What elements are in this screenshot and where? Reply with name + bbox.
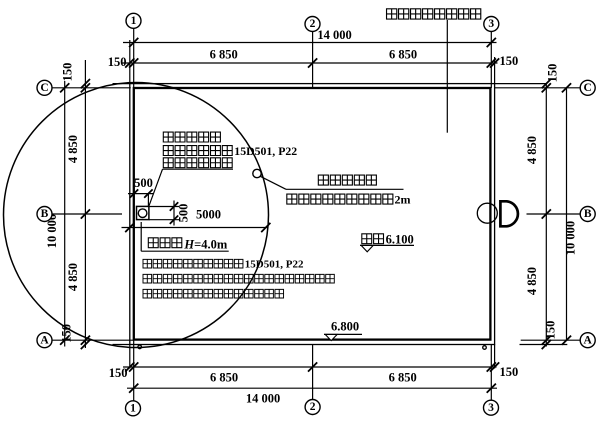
svg-text:15D501, P22: 15D501, P22: [234, 144, 297, 158]
svg-text:14 000: 14 000: [317, 28, 351, 42]
svg-text:6 850: 6 850: [389, 371, 417, 385]
svg-text:150: 150: [544, 321, 558, 340]
svg-text:2: 2: [310, 401, 316, 413]
svg-text:150: 150: [61, 63, 75, 82]
svg-text:1: 1: [131, 15, 137, 27]
svg-text:3: 3: [488, 18, 494, 30]
svg-text:14 000: 14 000: [246, 392, 280, 406]
svg-text:C: C: [40, 82, 48, 94]
svg-text:150: 150: [546, 64, 560, 83]
svg-text:H=4.0m: H=4.0m: [183, 237, 227, 251]
svg-text:B: B: [41, 208, 49, 220]
svg-text:15D501, P22: 15D501, P22: [245, 259, 304, 271]
svg-text:B: B: [584, 208, 592, 220]
svg-text:4 850: 4 850: [66, 263, 80, 291]
svg-text:150: 150: [500, 365, 519, 379]
svg-text:C: C: [584, 82, 592, 94]
svg-text:6.800: 6.800: [331, 319, 359, 333]
svg-text:A: A: [584, 334, 593, 346]
svg-text:1: 1: [130, 402, 136, 414]
svg-text:5000: 5000: [196, 207, 221, 221]
svg-text:150: 150: [109, 366, 128, 380]
svg-text:2: 2: [310, 18, 316, 30]
svg-text:10 000: 10 000: [564, 221, 578, 255]
svg-text:3: 3: [488, 402, 494, 414]
svg-text:150: 150: [500, 54, 519, 68]
svg-text:6 850: 6 850: [389, 48, 417, 62]
svg-text:150: 150: [60, 324, 74, 343]
svg-text:4 850: 4 850: [525, 267, 539, 295]
svg-text:6 850: 6 850: [210, 371, 238, 385]
svg-text:500: 500: [134, 176, 153, 190]
svg-text:4 850: 4 850: [525, 136, 539, 164]
svg-text:A: A: [40, 334, 49, 346]
svg-text:2m: 2m: [395, 192, 411, 206]
svg-text:6.100: 6.100: [386, 232, 414, 246]
svg-text:500: 500: [177, 204, 191, 223]
svg-text:150: 150: [108, 55, 127, 69]
svg-text:4 850: 4 850: [66, 135, 80, 163]
svg-text:6 850: 6 850: [210, 47, 238, 61]
